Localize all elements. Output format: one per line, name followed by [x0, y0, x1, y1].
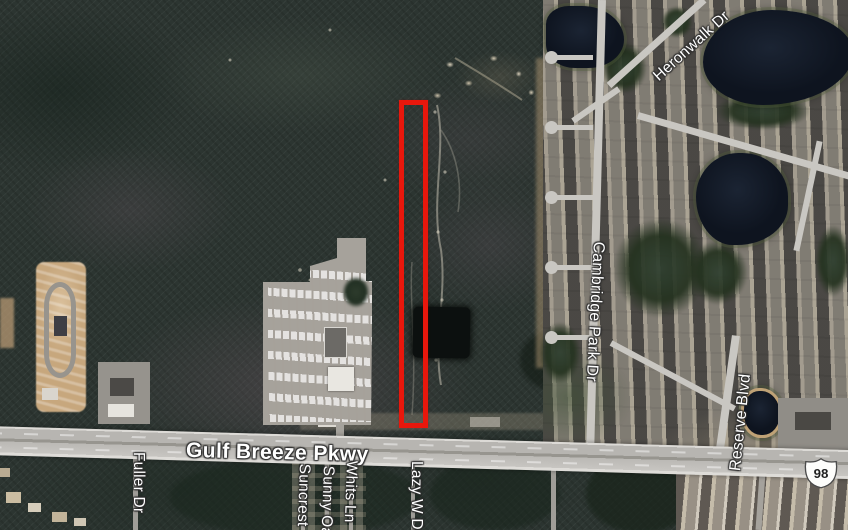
- tree-patch: [342, 276, 370, 308]
- cul-de-sac: [545, 261, 558, 274]
- house: [0, 468, 10, 477]
- tree-patch: [688, 240, 748, 305]
- building: [54, 316, 67, 336]
- residential-area: [543, 0, 848, 462]
- cleared-land: [425, 46, 550, 108]
- street: [551, 461, 556, 530]
- street-cambridge-park: [586, 0, 606, 456]
- map-canvas[interactable]: Gulf Breeze Pkwy Fuller Dr Suncrest Sunn…: [0, 0, 848, 530]
- cul-de-sac: [545, 331, 558, 344]
- cul-de-sac: [545, 191, 558, 204]
- house: [28, 503, 41, 512]
- parcel-outline: [399, 100, 428, 428]
- house: [74, 518, 86, 526]
- dirt-patch: [0, 298, 14, 348]
- building: [470, 417, 500, 427]
- cul-de-sac: [545, 51, 558, 64]
- route-number: 98: [814, 466, 829, 481]
- road-label-lazy-w-dr: Lazy W Dr: [407, 461, 425, 530]
- building: [110, 378, 134, 396]
- road-label-whits-ln: Whits Ln: [340, 460, 360, 522]
- pond: [696, 153, 788, 245]
- building: [42, 388, 58, 400]
- us-route-98-shield-icon: 98: [802, 456, 840, 490]
- street: [610, 340, 736, 411]
- tree-patch: [539, 322, 581, 384]
- building: [795, 412, 831, 430]
- road-label-suncrest: Suncrest: [293, 463, 313, 526]
- building: [328, 367, 354, 391]
- road-label-sunny-oak: Sunny Oak: [316, 465, 337, 530]
- road-label-fuller-dr: Fuller Dr: [129, 452, 147, 513]
- building: [324, 327, 347, 358]
- house: [6, 492, 21, 503]
- cul-de-sac: [545, 121, 558, 134]
- tree-patch: [815, 225, 848, 297]
- building: [108, 404, 134, 417]
- house: [52, 512, 67, 522]
